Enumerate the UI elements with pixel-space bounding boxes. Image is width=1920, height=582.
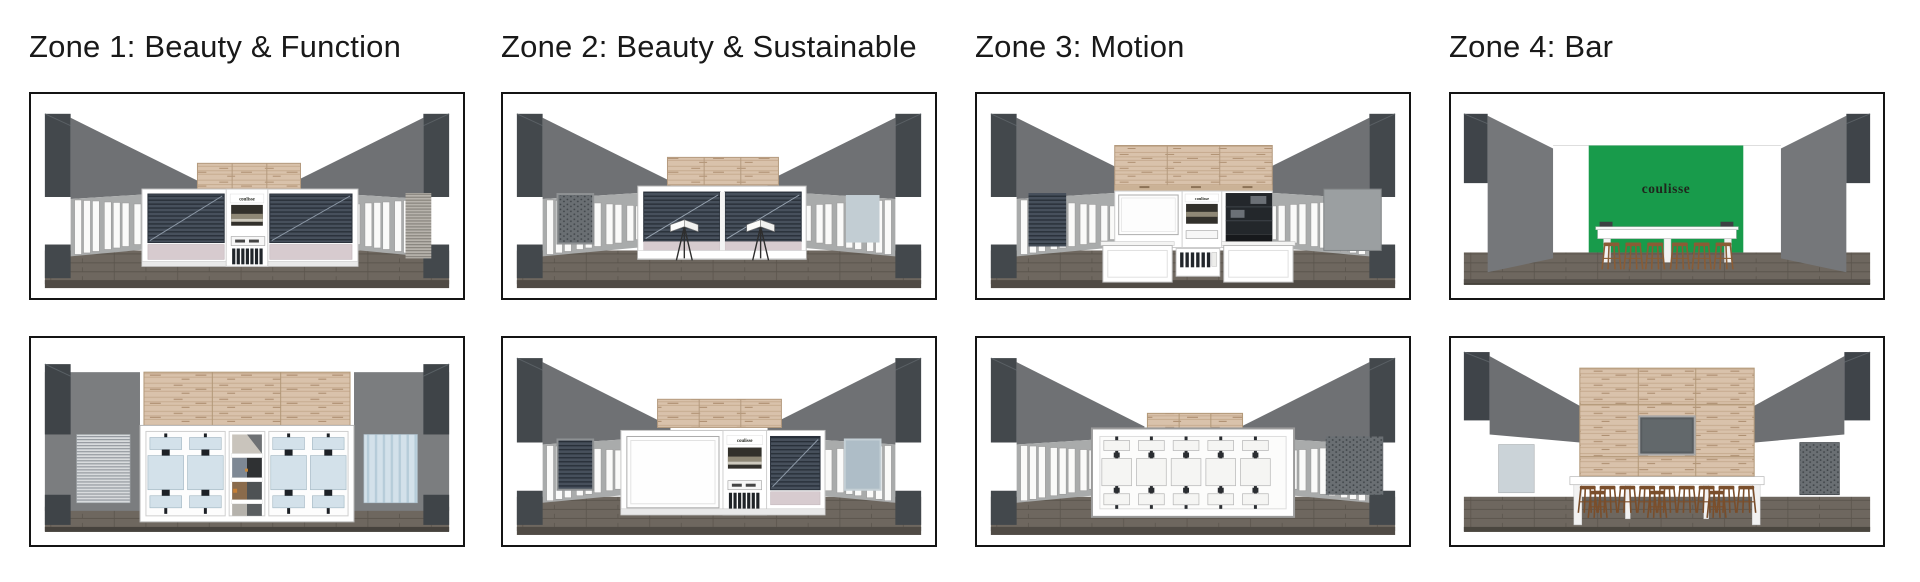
display-unit: coulisse bbox=[142, 189, 358, 266]
zone-4-bar-rendering: coulisse bbox=[1451, 94, 1883, 298]
zone-4-perspective-panel: coulisse bbox=[1449, 92, 1885, 300]
motion-display-case bbox=[1092, 428, 1294, 516]
brand-column: coulisse bbox=[226, 189, 268, 266]
zone-3-title: Zone 3: Motion bbox=[975, 30, 1185, 64]
zone-4-title: Zone 4: Bar bbox=[1449, 30, 1613, 64]
logo-text-small: coulisse bbox=[737, 439, 753, 444]
zone-1-perspective-panel: coulisse bbox=[29, 92, 465, 300]
wood-panel-band bbox=[197, 163, 300, 189]
zone-3-perspective-panel: coulisse bbox=[975, 92, 1411, 300]
zone-2-perspective-panel bbox=[501, 92, 937, 300]
zone-concept-board: Zone 1: Beauty & Function Zone 2: Beauty… bbox=[0, 0, 1920, 582]
lace-fabric-window bbox=[558, 195, 592, 243]
zone-1-elevation-rendering bbox=[31, 338, 463, 545]
wood-panel-band bbox=[144, 372, 350, 425]
lace-fabric-window bbox=[1800, 443, 1840, 495]
dark-appliance-bay bbox=[1226, 193, 1273, 244]
wood-panel-band bbox=[658, 399, 782, 427]
lace-fabric-panel bbox=[1326, 436, 1383, 494]
blank-screen bbox=[627, 436, 719, 507]
wood-cabinets bbox=[1115, 145, 1273, 191]
roller-samples bbox=[232, 248, 263, 264]
glass-display-case bbox=[638, 186, 806, 259]
pleated-shade-sample bbox=[406, 193, 432, 258]
zone-2-title: Zone 2: Beauty & Sustainable bbox=[501, 30, 917, 64]
zone-1-perspective-rendering: coulisse bbox=[31, 94, 463, 298]
zone-1-elevation-panel bbox=[29, 336, 465, 547]
zone-2-perspective-rendering bbox=[503, 94, 935, 298]
curtain-window-right bbox=[364, 434, 418, 502]
motion-kitchen-unit: coulisse bbox=[1115, 191, 1273, 247]
blind-window-left bbox=[1029, 193, 1067, 246]
zone-1-title: Zone 1: Beauty & Function bbox=[29, 30, 401, 64]
roller-samples bbox=[1176, 248, 1220, 276]
shade-window bbox=[846, 195, 880, 243]
wood-panel-band bbox=[667, 157, 778, 185]
window-left bbox=[1499, 445, 1535, 493]
roller-shade-panel bbox=[1324, 189, 1381, 250]
blind-window-left bbox=[558, 440, 592, 488]
zone-4-table-rendering bbox=[1451, 338, 1883, 545]
zone-4-elevation-panel bbox=[1449, 336, 1885, 547]
material-shelf-column bbox=[229, 431, 265, 515]
wood-panel-band bbox=[1147, 413, 1242, 428]
blind-window-left bbox=[77, 434, 131, 502]
projection-screen bbox=[1119, 195, 1178, 235]
zone-3-elevation-panel bbox=[975, 336, 1411, 547]
sample-cabinet bbox=[140, 425, 354, 521]
roller-samples bbox=[729, 493, 760, 510]
zone-2-elevation-panel: coulisse bbox=[501, 336, 937, 547]
zone-2-second-rendering: coulisse bbox=[503, 338, 935, 545]
zone-3-second-rendering bbox=[977, 338, 1409, 545]
brand-column: coulisse bbox=[723, 430, 767, 514]
interior-photo bbox=[231, 205, 263, 226]
wood-media-box bbox=[1580, 368, 1754, 477]
brand-column: coulisse bbox=[1182, 191, 1222, 247]
logo-text-large: coulisse bbox=[1642, 181, 1691, 196]
logo-text-small: coulisse bbox=[239, 197, 255, 202]
motor-rod-columns bbox=[1102, 436, 1270, 508]
zone-3-perspective-rendering: coulisse bbox=[977, 94, 1409, 298]
logo-text-small: coulisse bbox=[1195, 196, 1209, 201]
display-unit: coulisse bbox=[621, 430, 825, 514]
